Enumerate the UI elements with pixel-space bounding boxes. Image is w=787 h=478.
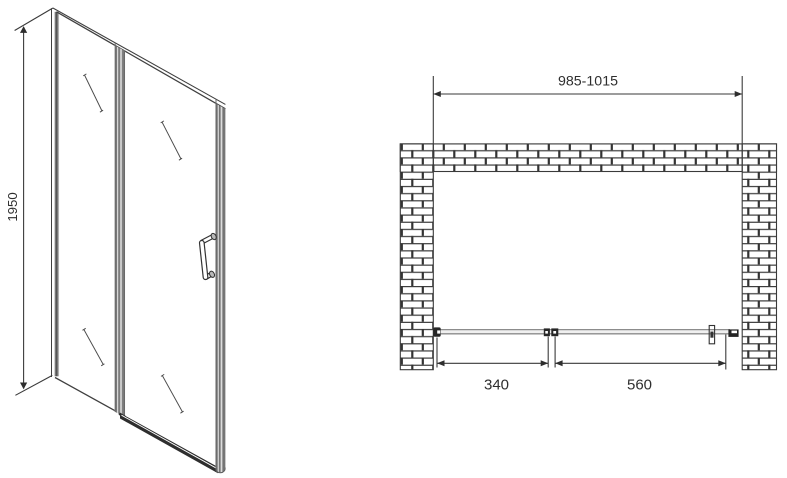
- svg-text:560: 560: [627, 377, 652, 394]
- svg-text:1950: 1950: [5, 192, 20, 221]
- svg-text:340: 340: [484, 377, 509, 394]
- svg-text:985-1015: 985-1015: [558, 74, 618, 90]
